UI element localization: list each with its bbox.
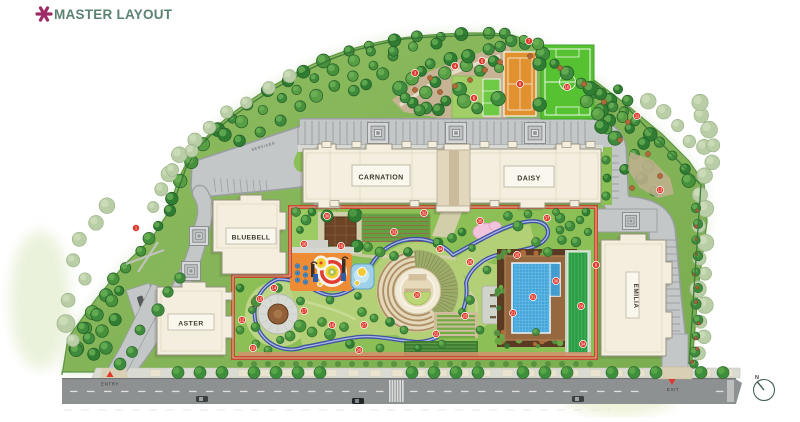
svg-text:17: 17 [302,309,307,314]
svg-text:10: 10 [565,85,570,90]
svg-text:26: 26 [468,260,473,265]
svg-text:13: 13 [658,188,663,193]
svg-text:28: 28 [302,242,307,247]
svg-text:23: 23 [463,314,468,319]
svg-text:27: 27 [362,323,367,328]
svg-text:22: 22 [434,332,439,337]
svg-text:29: 29 [357,348,362,353]
svg-text:35: 35 [478,219,483,224]
svg-text:BLUEBELL: BLUEBELL [232,235,271,242]
svg-text:CARNATION: CARNATION [358,175,403,182]
svg-text:14: 14 [272,286,277,291]
svg-text:37: 37 [545,216,550,221]
svg-text:20: 20 [415,293,420,298]
svg-text:24: 24 [579,304,584,309]
svg-text:15: 15 [258,297,263,302]
svg-text:34: 34 [581,342,586,347]
svg-text:34: 34 [438,247,443,252]
svg-text:EXIT: EXIT [667,387,679,392]
svg-text:36: 36 [554,279,559,284]
svg-text:25: 25 [515,253,520,258]
svg-text:ENTRY: ENTRY [101,382,119,387]
svg-text:ASTER: ASTER [178,321,204,328]
svg-text:21: 21 [511,311,516,316]
svg-text:12: 12 [240,318,245,323]
svg-text:19: 19 [339,244,344,249]
svg-text:16: 16 [330,323,335,328]
svg-text:33: 33 [392,230,397,235]
svg-text:31: 31 [531,295,536,300]
svg-text:MASTER LAYOUT: MASTER LAYOUT [54,7,173,22]
svg-text:30: 30 [325,214,330,219]
svg-text:DAISY: DAISY [517,176,540,183]
svg-text:N: N [755,375,759,381]
svg-text:18: 18 [251,346,256,351]
svg-text:EMILIA: EMILIA [632,283,639,308]
svg-text:11: 11 [635,114,640,119]
svg-text:32: 32 [422,211,427,216]
